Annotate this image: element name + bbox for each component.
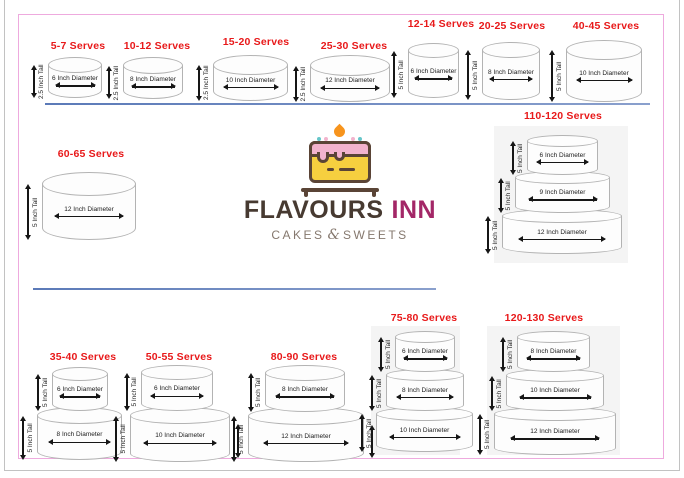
height-marker: 5 Inch Tall <box>499 337 514 372</box>
height-marker: 2.5 Inch Tall <box>292 66 307 103</box>
serves-label-110-120: 110-120 Serves <box>524 110 602 122</box>
cake-tier-25-30-1: 12 Inch Diameter <box>310 55 390 102</box>
height-label: 2.5 Inch Tall <box>300 66 307 103</box>
height-label: 5 Inch Tall <box>556 50 563 102</box>
tier-top-ellipse <box>42 172 136 196</box>
height-label: 5 Inch Tall <box>496 376 503 412</box>
diameter-arrow <box>529 199 597 201</box>
height-label: 5 Inch Tall <box>517 141 524 175</box>
cake-tier-120-130-1: 8 Inch Diameter <box>517 331 590 372</box>
cake-tier-120-130-3: 12 Inch Diameter <box>494 407 616 455</box>
tier-top-ellipse <box>408 43 459 58</box>
height-arrow-line <box>479 418 481 451</box>
serves-label-40-45: 40-45 Serves <box>573 20 640 32</box>
height-arrow-line <box>487 220 489 250</box>
height-arrow-line <box>393 55 395 95</box>
height-label: 5 Inch Tall <box>238 416 245 462</box>
diameter-arrow <box>56 85 95 87</box>
diameter-arrow <box>390 437 460 439</box>
diameter-label: 8 Inch Diameter <box>282 386 328 393</box>
cake-tier-5-7-1: 6 Inch Diameter <box>48 57 102 98</box>
cake-frosting <box>309 141 371 157</box>
height-label: 5 Inch Tall <box>385 337 392 372</box>
diameter-arrow <box>224 87 278 89</box>
cake-tier-10-12-1: 8 Inch Diameter <box>123 57 183 99</box>
height-arrow-line <box>491 380 493 408</box>
height-arrow <box>476 414 484 455</box>
cake-tier-40-45-1: 10 Inch Diameter <box>566 40 642 102</box>
section-divider <box>33 288 436 290</box>
height-marker: 2.5 Inch Tall <box>195 65 210 101</box>
tier-top-ellipse <box>517 331 590 343</box>
height-marker: 5 Inch Tall <box>34 374 49 411</box>
height-marker: 5 Inch Tall <box>112 416 127 463</box>
cake-dash <box>327 168 334 171</box>
cake-tier-35-40-2: 8 Inch Diameter <box>37 407 122 460</box>
cake-icon <box>301 126 379 192</box>
tier-top-ellipse <box>566 40 642 60</box>
height-arrow <box>497 178 505 214</box>
cake-tier-110-120-2: 9 Inch Diameter <box>515 171 610 213</box>
height-marker: 5 Inch Tall <box>19 416 34 461</box>
logo-title: FLAVOURSINN <box>230 198 450 223</box>
height-arrow-line <box>115 420 117 459</box>
height-label: 5 Inch Tall <box>398 51 405 99</box>
tier-top-ellipse <box>482 42 540 58</box>
diameter-arrow <box>520 397 591 399</box>
height-label: 5 Inch Tall <box>507 337 514 372</box>
serves-label-10-12: 10-12 Serves <box>124 40 191 52</box>
tier-top-ellipse <box>265 365 345 381</box>
diameter-label: 8 Inch Diameter <box>57 431 103 438</box>
height-marker: 2.5 Inch Tall <box>105 66 120 100</box>
cake-tier-50-55-2: 10 Inch Diameter <box>130 407 230 462</box>
diameter-arrow <box>276 396 334 398</box>
height-arrow-line <box>108 70 110 96</box>
diameter-arrow <box>144 443 216 445</box>
height-arrow-line <box>467 54 469 96</box>
cake-tier-80-90-2: 12 Inch Diameter <box>248 407 364 462</box>
height-arrow-line <box>500 182 502 210</box>
height-label: 2.5 Inch Tall <box>38 65 45 98</box>
diameter-arrow <box>415 78 452 80</box>
height-arrow-line <box>371 379 373 407</box>
cake-tier-12-14-1: 6 Inch Diameter <box>408 43 459 98</box>
height-marker: 5 Inch Tall <box>488 376 503 412</box>
serves-label-75-80: 75-80 Serves <box>391 312 458 324</box>
height-marker: 5 Inch Tall <box>377 337 392 372</box>
height-label: 5 Inch Tall <box>376 375 383 411</box>
diameter-label: 10 Inch Diameter <box>400 427 450 434</box>
height-arrow-line <box>512 145 514 171</box>
cake-tier-35-40-1: 6 Inch Diameter <box>52 367 108 411</box>
frosting-drip <box>334 152 345 161</box>
cake-tier-80-90-1: 8 Inch Diameter <box>265 365 345 412</box>
height-arrow <box>488 376 496 412</box>
serves-label-50-55: 50-55 Serves <box>146 351 213 363</box>
logo: FLAVOURSINN CAKES&SWEETS <box>230 126 450 243</box>
serves-label-12-14: 12-14 Serves <box>408 18 475 30</box>
height-label: 2.5 Inch Tall <box>203 65 210 101</box>
section-divider <box>45 103 650 105</box>
tier-top-ellipse <box>395 331 455 343</box>
height-arrow <box>230 416 238 462</box>
height-arrow <box>390 51 398 99</box>
height-label: 5 Inch Tall <box>366 414 373 452</box>
height-label: 5 Inch Tall <box>120 416 127 463</box>
tier-top-ellipse <box>213 55 288 75</box>
tagline-right: SWEETS <box>343 228 409 242</box>
diameter-arrow <box>404 358 447 360</box>
height-arrow <box>30 65 38 98</box>
height-arrow <box>195 65 203 101</box>
tier-top-ellipse <box>52 367 108 381</box>
height-arrow-line <box>361 418 363 448</box>
height-arrow <box>123 373 131 412</box>
height-arrow <box>499 337 507 372</box>
height-arrow <box>292 66 300 103</box>
serves-label-20-25: 20-25 Serves <box>479 20 546 32</box>
diameter-label: 12 Inch Diameter <box>325 77 375 84</box>
tier-top-ellipse <box>123 57 183 74</box>
serves-label-35-40: 35-40 Serves <box>50 351 117 363</box>
height-marker: 5 Inch Tall <box>497 178 512 214</box>
diameter-label: 8 Inch Diameter <box>130 76 176 83</box>
diameter-label: 6 Inch Diameter <box>540 152 586 159</box>
height-label: 2.5 Inch Tall <box>113 66 120 100</box>
diameter-label: 12 Inch Diameter <box>281 433 331 440</box>
tagline-left: CAKES <box>271 228 324 242</box>
height-label: 5 Inch Tall <box>131 373 138 412</box>
height-label: 5 Inch Tall <box>42 374 49 411</box>
diameter-label: 6 Inch Diameter <box>154 385 200 392</box>
diameter-label: 10 Inch Diameter <box>226 77 276 84</box>
height-arrow <box>247 373 255 412</box>
height-marker: 5 Inch Tall <box>390 51 405 99</box>
diameter-label: 6 Inch Diameter <box>411 68 457 75</box>
height-arrow-line <box>33 69 35 94</box>
height-marker: 5 Inch Tall <box>484 216 499 254</box>
cake-tier-75-80-3: 10 Inch Diameter <box>376 407 473 452</box>
height-arrow <box>548 50 556 102</box>
tier-top-ellipse <box>527 135 598 147</box>
flyer-page: FLAVOURSINN CAKES&SWEETS 5-7 Serves6 Inc… <box>0 0 684 478</box>
diameter-arrow <box>321 88 379 90</box>
cake-tier-120-130-2: 10 Inch Diameter <box>506 369 604 411</box>
serves-label-5-7: 5-7 Serves <box>51 40 106 52</box>
height-label: 5 Inch Tall <box>27 416 34 461</box>
height-marker: 5 Inch Tall <box>247 373 262 412</box>
height-label: 5 Inch Tall <box>32 184 39 240</box>
diameter-arrow <box>264 443 348 445</box>
diameter-arrow <box>537 162 588 164</box>
height-arrow <box>368 375 376 411</box>
diameter-arrow <box>49 442 110 444</box>
cake-tier-20-25-1: 8 Inch Diameter <box>482 42 540 100</box>
height-marker: 5 Inch Tall <box>476 414 491 455</box>
tier-top-ellipse <box>310 55 390 76</box>
height-marker: 5 Inch Tall <box>464 50 479 100</box>
height-label: 5 Inch Tall <box>255 373 262 412</box>
height-arrow-line <box>250 377 252 408</box>
height-marker: 5 Inch Tall <box>509 141 524 175</box>
height-arrow <box>34 374 42 411</box>
cake-tier-50-55-1: 6 Inch Diameter <box>141 365 213 411</box>
tier-top-ellipse <box>48 57 102 73</box>
height-label: 5 Inch Tall <box>492 216 499 254</box>
diameter-label: 8 Inch Diameter <box>488 69 534 76</box>
cake-tier-75-80-1: 6 Inch Diameter <box>395 331 455 372</box>
serves-label-120-130: 120-130 Serves <box>505 312 584 324</box>
tagline-ampersand: & <box>328 227 340 243</box>
height-arrow <box>24 184 32 240</box>
height-marker: 5 Inch Tall <box>358 414 373 452</box>
height-arrow <box>112 416 120 463</box>
diameter-arrow <box>511 438 599 440</box>
height-arrow-line <box>502 341 504 368</box>
height-arrow-line <box>233 420 235 458</box>
cake-body <box>309 141 371 183</box>
diameter-label: 6 Inch Diameter <box>57 386 103 393</box>
height-marker: 5 Inch Tall <box>230 416 245 462</box>
cake-tier-15-20-1: 10 Inch Diameter <box>213 55 288 101</box>
cake-tier-110-120-1: 6 Inch Diameter <box>527 135 598 175</box>
diameter-label: 8 Inch Diameter <box>531 348 577 355</box>
candle-flame-icon <box>332 124 348 140</box>
height-marker: 5 Inch Tall <box>368 375 383 411</box>
height-arrow-line <box>551 54 553 98</box>
diameter-label: 10 Inch Diameter <box>155 432 205 439</box>
height-marker: 5 Inch Tall <box>548 50 563 102</box>
height-marker: 5 Inch Tall <box>123 373 138 412</box>
diameter-label: 8 Inch Diameter <box>402 387 448 394</box>
height-arrow-line <box>37 378 39 407</box>
diameter-arrow <box>151 396 203 398</box>
height-label: 5 Inch Tall <box>484 414 491 455</box>
logo-title-secondary: INN <box>392 196 437 224</box>
height-arrow-line <box>126 377 128 408</box>
height-arrow-line <box>22 420 24 457</box>
cake-tier-60-65-1: 12 Inch Diameter <box>42 172 136 240</box>
diameter-arrow <box>55 216 123 218</box>
height-arrow-line <box>380 341 382 368</box>
frosting-drip <box>317 152 329 163</box>
diameter-label: 12 Inch Diameter <box>530 428 580 435</box>
cake-tier-75-80-2: 8 Inch Diameter <box>386 369 464 411</box>
cake-tier-110-120-3: 12 Inch Diameter <box>502 209 622 254</box>
diameter-label: 9 Inch Diameter <box>540 189 586 196</box>
height-arrow-line <box>198 69 200 97</box>
diameter-label: 10 Inch Diameter <box>530 387 580 394</box>
diameter-arrow <box>60 396 100 398</box>
diameter-arrow <box>132 86 175 88</box>
height-arrow <box>484 216 492 254</box>
diameter-label: 10 Inch Diameter <box>579 70 629 77</box>
logo-tagline: CAKES&SWEETS <box>230 227 450 243</box>
serves-label-60-65: 60-65 Serves <box>58 148 125 160</box>
height-arrow-line <box>27 188 29 236</box>
height-arrow <box>509 141 517 175</box>
diameter-label: 12 Inch Diameter <box>537 229 587 236</box>
height-arrow-line <box>295 70 297 99</box>
serves-label-25-30: 25-30 Serves <box>321 40 388 52</box>
diameter-arrow <box>490 79 532 81</box>
tier-top-ellipse <box>141 365 213 380</box>
serves-label-80-90: 80-90 Serves <box>271 351 338 363</box>
height-marker: 2.5 Inch Tall <box>30 65 45 98</box>
diameter-label: 6 Inch Diameter <box>402 348 448 355</box>
serves-label-15-20: 15-20 Serves <box>223 36 290 48</box>
height-arrow <box>358 414 366 452</box>
diameter-arrow <box>527 358 580 360</box>
height-marker: 5 Inch Tall <box>24 184 39 240</box>
diameter-arrow <box>397 397 453 399</box>
logo-title-primary: FLAVOURS <box>244 196 384 224</box>
cake-dash <box>339 168 355 171</box>
height-label: 5 Inch Tall <box>505 178 512 214</box>
height-arrow <box>464 50 472 100</box>
height-arrow <box>105 66 113 100</box>
height-arrow <box>377 337 385 372</box>
height-label: 5 Inch Tall <box>472 50 479 100</box>
diameter-label: 12 Inch Diameter <box>64 206 114 213</box>
diameter-arrow <box>519 239 605 241</box>
diameter-arrow <box>577 80 632 82</box>
cake-stand <box>301 188 379 192</box>
diameter-label: 6 Inch Diameter <box>52 75 98 82</box>
height-arrow <box>19 416 27 461</box>
